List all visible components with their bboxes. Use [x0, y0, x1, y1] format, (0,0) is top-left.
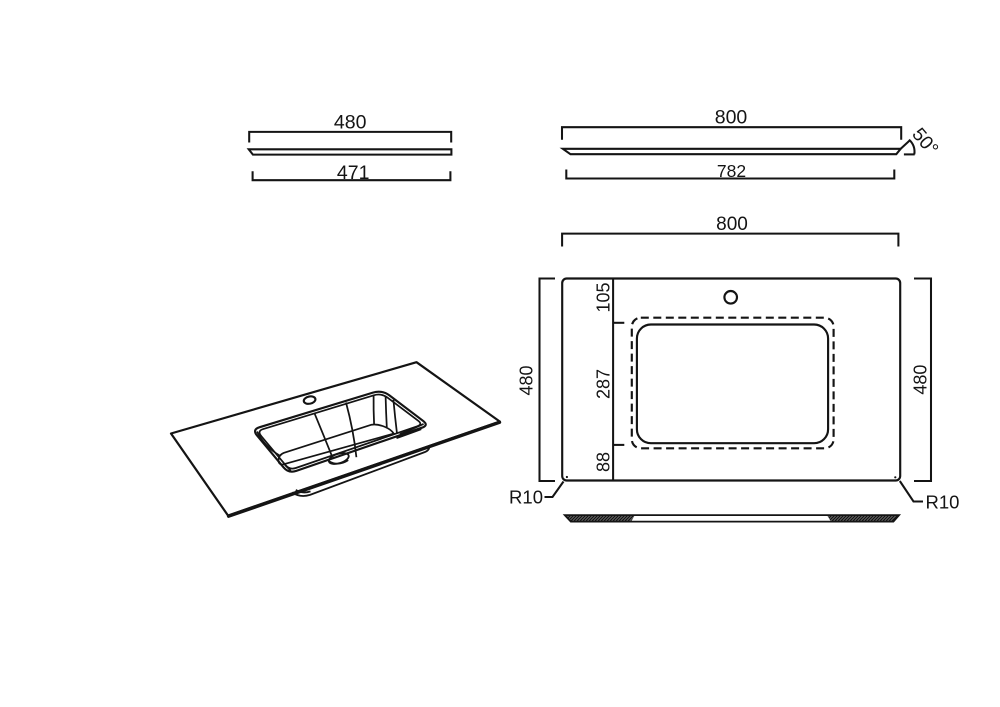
svg-text:800: 800: [715, 107, 748, 129]
svg-text:88: 88: [593, 452, 613, 472]
svg-text:287: 287: [593, 369, 613, 399]
svg-text:105: 105: [593, 282, 613, 312]
svg-text:800: 800: [716, 214, 748, 235]
svg-text:480: 480: [517, 365, 537, 395]
svg-text:R10: R10: [926, 492, 960, 513]
svg-text:471: 471: [337, 162, 370, 184]
svg-text:R10: R10: [509, 487, 543, 508]
svg-text:782: 782: [717, 161, 746, 181]
svg-text:480: 480: [910, 365, 930, 395]
svg-text:480: 480: [334, 112, 367, 134]
